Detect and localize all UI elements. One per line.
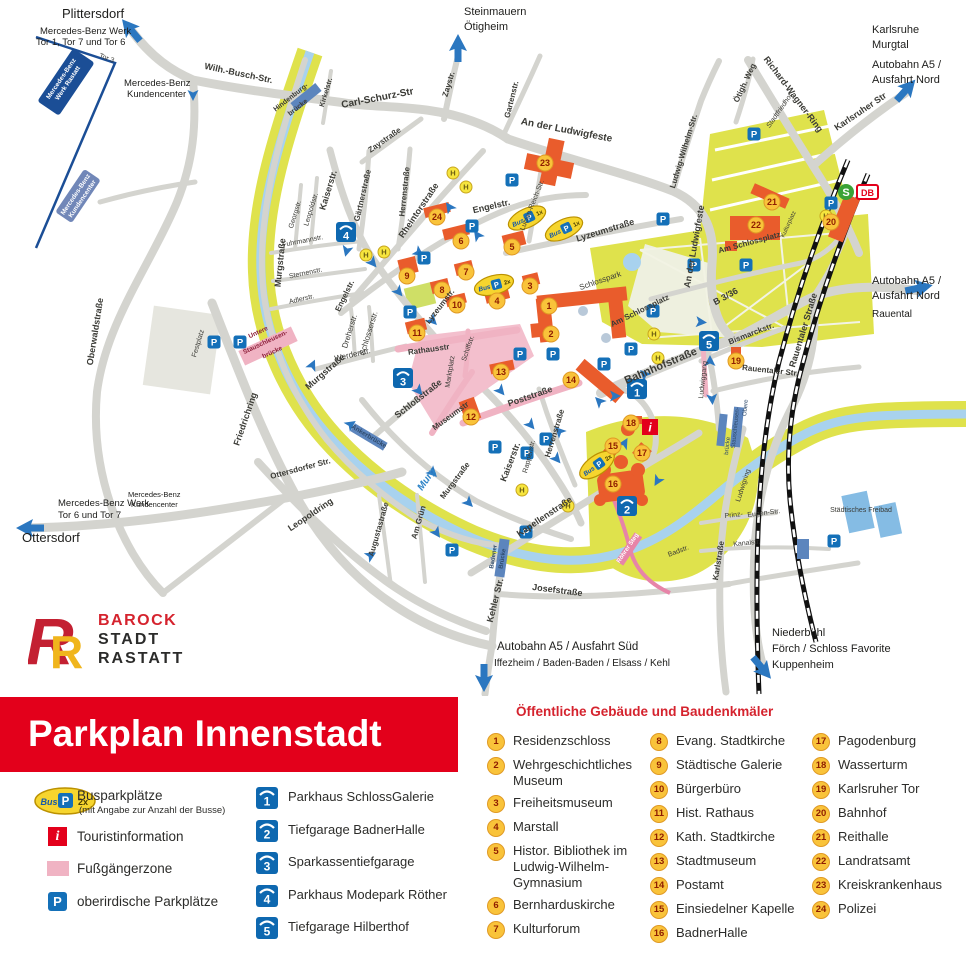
legend-building-label: Bahnhof: [838, 805, 886, 823]
buildings-legend-col3: 17Pagodenburg18Wasserturm19Karlsruher To…: [812, 733, 964, 925]
legend-garage-item-1: 1 Parkhaus SchlossGalerie: [255, 786, 279, 810]
svg-text:12: 12: [466, 412, 476, 422]
svg-text:P: P: [492, 443, 499, 454]
legend-building-label: Postamt: [676, 877, 724, 895]
poi-number-badge: 22: [812, 853, 830, 871]
poi-number-badge: 8: [650, 733, 668, 751]
svg-text:S: S: [842, 187, 849, 199]
map-label: Kehler Str.: [485, 577, 506, 623]
parking-icon: P: [234, 336, 247, 349]
legend-garage-label: Sparkassentiefgarage: [288, 854, 414, 869]
poi-marker-17: 17: [634, 445, 650, 461]
parking-garage-icon-3: 3: [393, 368, 413, 389]
poi-marker-5: 5: [504, 239, 520, 255]
poi-number-badge: 17: [812, 733, 830, 751]
svg-text:3: 3: [527, 281, 532, 291]
map-label: Städtisches Freibad: [830, 507, 892, 514]
svg-text:15: 15: [608, 441, 618, 451]
svg-text:H: H: [363, 251, 368, 260]
legend-building-item-22: 22Landratsamt: [812, 853, 964, 871]
poi-number-badge: 19: [812, 781, 830, 799]
legend-garage-item-3: 3 Sparkassentiefgarage: [255, 851, 279, 875]
legend-building-item-20: 20Bahnhof: [812, 805, 964, 823]
svg-text:P: P: [407, 308, 414, 319]
poi-number-badge: 21: [812, 829, 830, 847]
svg-text:13: 13: [496, 367, 506, 377]
map-label: Mercedes-Benz Werk: [40, 26, 131, 37]
map-label: Ötigheim: [464, 21, 508, 33]
svg-text:4: 4: [494, 296, 499, 306]
poi-number-badge: 10: [650, 781, 668, 799]
legend-building-item-3: 3Freiheitsmuseum: [487, 795, 649, 813]
tourist-info-icon: i: [642, 419, 658, 435]
bus-stop-icon: H: [378, 246, 390, 258]
legend-building-label: Residenzschloss: [513, 733, 611, 751]
svg-text:5: 5: [264, 925, 271, 939]
map-label: Herrenstraße: [397, 166, 411, 217]
svg-text:6: 6: [458, 236, 463, 246]
parking-icon: P: [547, 348, 560, 361]
poi-number-badge: 1: [487, 733, 505, 751]
poi-number-badge: 23: [812, 877, 830, 895]
legend-building-item-6: 6Bernharduskirche: [487, 897, 649, 915]
poi-number-badge: 20: [812, 805, 830, 823]
map-label: Iffezheim / Baden-Baden / Elsass / Kehl: [494, 658, 670, 669]
bus-stop-icon: H: [447, 167, 459, 179]
legend-building-label: Städtische Galerie: [676, 757, 782, 775]
map-label: Kaiserstr.: [317, 169, 339, 211]
legend-building-item-5: 5Histor. Bibliothek im Ludwig-Wilhelm-Gy…: [487, 843, 649, 891]
logo-line-rastatt: RASTATT: [98, 650, 184, 668]
svg-text:5: 5: [509, 242, 514, 252]
legend-building-item-2: 2Wehrgeschichtliches Museum: [487, 757, 649, 789]
legend-building-item-16: 16BadnerHalle: [650, 925, 812, 943]
svg-text:3: 3: [400, 377, 406, 389]
poi-number-badge: 18: [812, 757, 830, 775]
db-icon: DB: [857, 185, 878, 199]
poi-marker-7: 7: [458, 264, 474, 280]
legend-tourist-info-label: Touristinformation: [77, 829, 184, 844]
tourist-info-icon: i: [48, 827, 67, 846]
mercedes-box: Mercedes-BenzWerk Rastatt: [37, 48, 94, 116]
legend-building-label: Polizei: [838, 901, 876, 919]
svg-text:9: 9: [404, 271, 409, 281]
legend-building-label: Histor. Bibliothek im Ludwig-Wilhelm-Gym…: [513, 843, 649, 891]
legend-garage-label: Tiefgarage BadnerHalle: [288, 822, 425, 837]
parking-garage-icon: 5: [255, 916, 279, 940]
poi-number-badge: 3: [487, 795, 505, 813]
parking-icon: P: [825, 197, 838, 210]
svg-text:4: 4: [343, 231, 350, 243]
parking-icon: P: [828, 535, 841, 548]
map-label: Obere: [742, 399, 750, 417]
legend-building-item-24: 24Polizei: [812, 901, 964, 919]
pedestrian-zone-swatch: [47, 861, 69, 876]
poi-marker-23: 23: [537, 155, 553, 171]
map-label: Murgtal: [872, 39, 909, 51]
svg-text:P: P: [660, 215, 667, 226]
legend-building-item-10: 10Bürgerbüro: [650, 781, 812, 799]
festplatz-area: [143, 306, 221, 395]
bus-stop-icon: H: [648, 328, 660, 340]
legend-building-item-23: 23Kreiskrankenhaus: [812, 877, 964, 895]
poi-marker-11: 11: [409, 325, 425, 341]
legend-garage-item-4: 4 Parkhaus Modepark Röther: [255, 884, 279, 908]
logo-line-stadt: STADT: [98, 631, 160, 649]
map-label: Kaiserstr.: [498, 441, 522, 483]
bus-stop-icon: H: [460, 181, 472, 193]
map-label: Ludwig-Wilhelm-Str.: [668, 113, 699, 189]
poi-number-badge: 5: [487, 843, 505, 861]
map-label: Niederbühl: [772, 627, 825, 639]
map-label: Rauental: [872, 309, 912, 320]
map-label: Kuppenheim: [772, 659, 834, 671]
parking-icon: P: [506, 174, 519, 187]
map-label: Kundencenter: [131, 500, 178, 509]
svg-text:24: 24: [432, 212, 442, 222]
legend-building-item-17: 17Pagodenburg: [812, 733, 964, 751]
sbahn-icon: S: [838, 184, 854, 200]
map-label: An der Ludwigfeste: [520, 116, 614, 145]
svg-text:1: 1: [546, 301, 551, 311]
map-label: Murgstraße: [303, 352, 347, 392]
svg-text:H: H: [651, 330, 656, 339]
bus-stop-icon: H: [516, 484, 528, 496]
legend-building-label: Bernharduskirche: [513, 897, 615, 915]
legend-garage-label: Parkhaus SchlossGalerie: [288, 789, 434, 804]
poi-number-badge: 12: [650, 829, 668, 847]
parking-garage-icon-5: 5: [699, 331, 719, 352]
parking-icon: P: [466, 220, 479, 233]
svg-text:DB: DB: [861, 188, 874, 198]
poi-marker-21: 21: [764, 194, 780, 210]
map-label: Autobahn A5 / Ausfahrt Süd: [497, 641, 638, 653]
svg-text:P: P: [421, 254, 428, 265]
parking-icon: P: [748, 128, 761, 141]
svg-text:P: P: [601, 360, 608, 371]
legend-building-label: Einsiedelner Kapelle: [676, 901, 795, 919]
legend-building-item-9: 9Städtische Galerie: [650, 757, 812, 775]
svg-text:1: 1: [634, 388, 640, 400]
svg-text:P: P: [550, 350, 557, 361]
city-map: Mercedes-BenzWerk RastattMercedes-BenzKu…: [0, 0, 966, 696]
poi-marker-22: 22: [748, 217, 764, 233]
poi-marker-16: 16: [605, 476, 621, 492]
legend-building-label: Marstall: [513, 819, 559, 837]
map-label: Mercedes-Benz: [124, 78, 191, 89]
poi-number-badge: 16: [650, 925, 668, 943]
svg-text:P: P: [831, 537, 838, 548]
poi-marker-20: 20: [823, 214, 839, 230]
poi-marker-15: 15: [605, 438, 621, 454]
parking-icon: P: [489, 441, 502, 454]
bus-stop-icon: H: [360, 249, 372, 261]
legend-building-label: Kath. Stadtkirche: [676, 829, 775, 847]
poi-marker-10: 10: [449, 297, 465, 313]
legend-building-item-12: 12Kath. Stadtkirche: [650, 829, 812, 847]
legend-surface-parking-label: oberirdische Parkplätze: [77, 894, 218, 909]
svg-text:P: P: [517, 350, 524, 361]
svg-text:2: 2: [548, 329, 553, 339]
parking-garage-icon: 2: [255, 819, 279, 843]
svg-text:2: 2: [624, 505, 630, 517]
legend-building-item-15: 15Einsiedelner Kapelle: [650, 901, 812, 919]
legend-building-label: Wehrgeschichtliches Museum: [513, 757, 649, 789]
svg-text:21: 21: [767, 197, 777, 207]
svg-text:Bus: Bus: [40, 797, 57, 807]
parking-garage-icon: 4: [255, 884, 279, 908]
legend-building-label: Kulturforum: [513, 921, 580, 939]
legend-building-label: Landratsamt: [838, 853, 910, 871]
poi-marker-14: 14: [563, 372, 579, 388]
barock-stadt-rastatt-logo: R R BAROCK STADT RASTATT: [28, 604, 258, 682]
title-banner: Parkplan Innenstadt: [0, 697, 458, 772]
legend-building-item-14: 14Postamt: [650, 877, 812, 895]
svg-text:3: 3: [264, 860, 271, 874]
oneway-arrow-icon: [340, 245, 353, 258]
map-label: Mercedes-Benz: [128, 490, 181, 499]
parking-icon: P: [625, 343, 638, 356]
map-label: Zaystraße: [367, 125, 404, 154]
legend-building-item-11: 11Hist. Rathaus: [650, 805, 812, 823]
svg-text:H: H: [463, 183, 468, 192]
legend-building-item-8: 8Evang. Stadtkirche: [650, 733, 812, 751]
map-label: Karlsruhe: [872, 24, 919, 36]
svg-text:H: H: [519, 486, 524, 495]
svg-text:H: H: [381, 248, 386, 257]
svg-text:16: 16: [608, 479, 618, 489]
mercedes-box: Mercedes-BenzKundencenter: [55, 169, 101, 223]
legend-building-item-18: 18Wasserturm: [812, 757, 964, 775]
legend-building-label: Kreiskrankenhaus: [838, 877, 942, 895]
poi-marker-3: 3: [522, 278, 538, 294]
map-svg: Mercedes-BenzWerk RastattMercedes-BenzKu…: [0, 0, 966, 696]
legend-building-label: Pagodenburg: [838, 733, 916, 751]
svg-text:14: 14: [566, 375, 576, 385]
poi-number-badge: 13: [650, 853, 668, 871]
map-label: Georgstr.: [288, 200, 303, 230]
parking-icon: P: [446, 544, 459, 557]
legend-building-label: Evang. Stadtkirche: [676, 733, 785, 751]
poi-marker-9: 9: [399, 268, 415, 284]
parking-icon: P: [598, 358, 611, 371]
legend-garage-item-5: 5 Tiefgarage Hilberthof: [255, 916, 279, 940]
svg-text:10: 10: [452, 300, 462, 310]
poi-number-badge: 7: [487, 921, 505, 939]
poi-number-badge: 11: [650, 805, 668, 823]
legend-building-label: Bürgerbüro: [676, 781, 741, 799]
parking-icon: P: [514, 348, 527, 361]
legend-garage-label: Parkhaus Modepark Röther: [288, 887, 447, 902]
svg-text:P: P: [743, 261, 750, 272]
svg-text:P: P: [751, 130, 758, 141]
svg-text:7: 7: [463, 267, 468, 277]
svg-text:P: P: [62, 796, 70, 808]
legend-building-item-7: 7Kulturforum: [487, 921, 649, 939]
poi-marker-2: 2: [543, 326, 559, 342]
map-label: Ausfahrt Nord: [872, 74, 940, 86]
buildings-legend-col1: 1Residenzschloss2Wehrgeschichtliches Mus…: [487, 733, 649, 945]
parking-icon: P: [657, 213, 670, 226]
svg-text:11: 11: [412, 328, 422, 338]
svg-text:23: 23: [540, 158, 550, 168]
parking-garage-icon-4: 4: [336, 222, 356, 243]
direction-arrow-icon: [449, 34, 467, 62]
legend-pedestrian-zone-label: Fußgängerzone: [77, 861, 172, 876]
legend-building-label: BadnerHalle: [676, 925, 748, 943]
legend-garage-label: Tiefgarage Hilberthof: [288, 919, 409, 934]
map-label: Gärtnerstraße: [352, 168, 373, 222]
legend-building-label: Wasserturm: [838, 757, 908, 775]
parking-garage-icon: 1: [255, 786, 279, 810]
legend-building-label: Stadtmuseum: [676, 853, 756, 871]
map-label: Murg: [416, 466, 439, 492]
svg-text:P: P: [449, 546, 456, 557]
map-label: Tor 6 und Tor 7: [58, 510, 121, 521]
svg-text:P: P: [509, 176, 516, 187]
poi-marker-6: 6: [453, 233, 469, 249]
buildings-legend-title: Öffentliche Gebäude und Baudenkmäler: [516, 704, 773, 719]
page-title: Parkplan Innenstadt: [28, 713, 382, 755]
svg-text:P: P: [469, 222, 476, 233]
surface-parking-icon: P: [48, 892, 67, 911]
poi-number-badge: 2: [487, 757, 505, 775]
legend-building-label: Freiheitsmuseum: [513, 795, 613, 813]
map-label: Tor 1, Tor 7 und Tor 6: [36, 37, 125, 48]
parking-garage-icon: 3: [255, 851, 279, 875]
map-label: Förch / Schloss Favorite: [772, 643, 891, 655]
legend-building-item-21: 21Reithalle: [812, 829, 964, 847]
poi-number-badge: 6: [487, 897, 505, 915]
poi-number-badge: 15: [650, 901, 668, 919]
svg-text:H: H: [450, 169, 455, 178]
map-label: Plittersdorf: [62, 6, 125, 21]
legend-building-label: Reithalle: [838, 829, 889, 847]
poi-number-badge: 14: [650, 877, 668, 895]
svg-text:P: P: [628, 345, 635, 356]
poi-marker-18: 18: [623, 415, 639, 431]
legend-garage-item-2: 2 Tiefgarage BadnerHalle: [255, 819, 279, 843]
map-label: Dreherstr.: [340, 313, 359, 349]
poi-marker-12: 12: [463, 409, 479, 425]
parkplan-page: { "banner": {"title": "Parkplan Innensta…: [0, 0, 966, 966]
svg-text:22: 22: [751, 220, 761, 230]
legend-building-item-13: 13Stadtmuseum: [650, 853, 812, 871]
legend-building-label: Hist. Rathaus: [676, 805, 754, 823]
svg-text:P: P: [828, 199, 835, 210]
logo-line-barock: BAROCK: [98, 612, 177, 630]
legend-bus-parking-sublabel: (mit Angabe zur Anzahl der Busse): [79, 805, 225, 816]
poi-number-badge: 4: [487, 819, 505, 837]
legend-building-item-19: 19Karlsruher Tor: [812, 781, 964, 799]
parking-icon: P: [740, 259, 753, 272]
parking-icon: P: [208, 336, 221, 349]
legend-building-label: Karlsruher Tor: [838, 781, 919, 799]
map-label: Autobahn A5 /: [872, 275, 942, 287]
svg-text:20: 20: [826, 217, 836, 227]
buildings-legend-col2: 8Evang. Stadtkirche9Städtische Galerie10…: [650, 733, 812, 949]
schlosspark-pond: [623, 253, 641, 271]
svg-text:4: 4: [264, 892, 271, 906]
svg-text:17: 17: [637, 448, 647, 458]
svg-text:18: 18: [626, 418, 636, 428]
svg-text:P: P: [211, 338, 218, 349]
svg-text:P: P: [237, 338, 244, 349]
parking-garage-icon-2: 2: [617, 496, 637, 517]
poi-marker-13: 13: [493, 364, 509, 380]
map-label: Tor 3: [98, 53, 115, 65]
legend-building-item-4: 4Marstall: [487, 819, 649, 837]
map-label: Autobahn A5 /: [872, 59, 942, 71]
poi-marker-1: 1: [541, 298, 557, 314]
parking-icon: P: [404, 306, 417, 319]
poi-number-badge: 9: [650, 757, 668, 775]
svg-text:5: 5: [706, 340, 712, 352]
rastatt-r-logo-icon: R R: [28, 610, 90, 674]
legend-building-item-1: 1Residenzschloss: [487, 733, 649, 751]
svg-text:R: R: [50, 626, 83, 674]
poi-marker-24: 24: [429, 209, 445, 225]
map-label: Ottersdorf: [22, 530, 80, 545]
map-label: Kundencenter: [127, 89, 186, 100]
map-label: Ausfahrt Nord: [872, 290, 940, 302]
svg-text:19: 19: [731, 356, 741, 366]
freibad-buildings: [841, 491, 902, 538]
poi-marker-4: 4: [489, 293, 505, 309]
legend-bus-parking-label: Busparkplätze: [77, 788, 163, 803]
svg-text:1: 1: [264, 795, 271, 809]
poi-number-badge: 24: [812, 901, 830, 919]
map-label: Steinmauern: [464, 6, 526, 18]
parking-icon: P: [418, 252, 431, 265]
svg-text:2: 2: [264, 827, 271, 841]
